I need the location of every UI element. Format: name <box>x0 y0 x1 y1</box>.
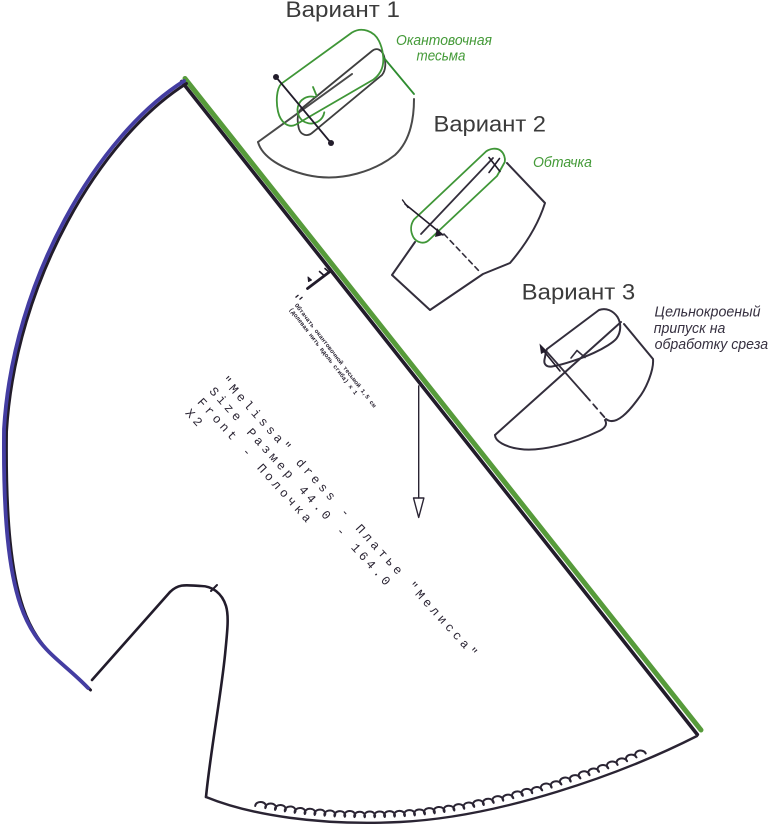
svg-text:Обтачка: Обтачка <box>533 155 592 171</box>
svg-text:Вариант 2: Вариант 2 <box>434 112 547 137</box>
svg-text:Вариант 1: Вариант 1 <box>286 0 401 22</box>
svg-text:Вариант 3: Вариант 3 <box>522 280 636 305</box>
svg-text:Окантовочная: Окантовочная <box>396 33 492 49</box>
svg-text:Цельнокроеный: Цельнокроеный <box>655 305 761 321</box>
svg-text:обработку среза: обработку среза <box>655 337 768 353</box>
svg-text:тесьма: тесьма <box>417 49 466 65</box>
svg-text:припуск на: припуск на <box>654 321 726 337</box>
